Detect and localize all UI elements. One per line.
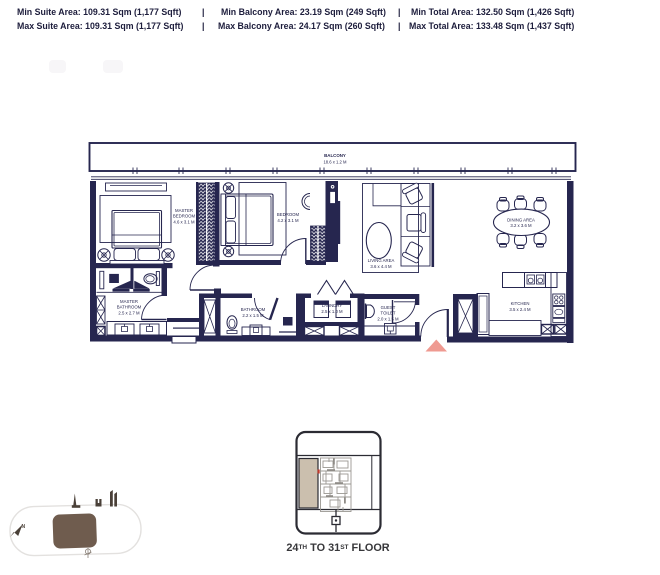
svg-text:BATHROOM: BATHROOM — [241, 307, 266, 312]
svg-text:DINING AREA: DINING AREA — [507, 218, 535, 223]
svg-text:Max Total Area: 133.48 Sqm (1,: Max Total Area: 133.48 Sqm (1,437 Sqft) — [409, 21, 574, 31]
svg-text:KITCHEN: KITCHEN — [511, 301, 530, 306]
svg-text:18.6 x 1.2 M: 18.6 x 1.2 M — [323, 160, 347, 165]
svg-text:BEDROOM: BEDROOM — [277, 212, 300, 217]
svg-text:Min Total Area: 132.50 Sqm (1,: Min Total Area: 132.50 Sqm (1,426 Sqft) — [411, 7, 574, 17]
svg-text:MASTER: MASTER — [120, 299, 138, 304]
svg-text:2.5 x 2.7 M: 2.5 x 2.7 M — [118, 311, 140, 316]
svg-text:3.2 x 3.6 M: 3.2 x 3.6 M — [510, 223, 532, 228]
svg-text:Min Suite Area: 109.31 Sqm (1,: Min Suite Area: 109.31 Sqm (1,177 Sqft) — [17, 7, 181, 17]
svg-text:LIVING AREA: LIVING AREA — [368, 258, 395, 263]
svg-text:3.5 x 2.4 M: 3.5 x 2.4 M — [509, 307, 531, 312]
svg-text:4.6 x 3.1 M: 4.6 x 3.1 M — [173, 220, 195, 225]
svg-text:BEDROOM: BEDROOM — [173, 214, 196, 219]
svg-text:|: | — [398, 7, 400, 17]
svg-text:Max Balcony Area: 24.17 Sqm (2: Max Balcony Area: 24.17 Sqm (260 Sqft) — [218, 21, 385, 31]
svg-text:24TH TO 31ST FLOOR: 24TH TO 31ST FLOOR — [286, 542, 389, 554]
svg-text:|: | — [398, 21, 400, 31]
svg-text:Max Suite Area: 109.31 Sqm (1,: Max Suite Area: 109.31 Sqm (1,177 Sqft) — [17, 21, 183, 31]
svg-text:Min Balcony Area: 23.19 Sqm (2: Min Balcony Area: 23.19 Sqm (249 Sqft) — [221, 7, 386, 17]
svg-text:2.5 x 1.0 M: 2.5 x 1.0 M — [321, 309, 343, 314]
svg-text:4.2 x 3.1 M: 4.2 x 3.1 M — [277, 218, 299, 223]
svg-text:TOILET: TOILET — [381, 311, 396, 316]
svg-text:GUEST: GUEST — [381, 305, 396, 310]
svg-text:|: | — [202, 7, 204, 17]
svg-text:|: | — [202, 21, 204, 31]
svg-text:BALCONY: BALCONY — [324, 153, 346, 158]
svg-text:3.6 x 4.4 M: 3.6 x 4.4 M — [370, 264, 392, 269]
svg-text:2.2 x 1.5 M: 2.2 x 1.5 M — [242, 313, 264, 318]
svg-text:LAUNDRY: LAUNDRY — [322, 303, 343, 308]
svg-text:BATHROOM: BATHROOM — [117, 305, 142, 310]
svg-text:MASTER: MASTER — [175, 208, 193, 213]
svg-text:N: N — [22, 524, 26, 530]
svg-text:2.0 x 1.5 M: 2.0 x 1.5 M — [377, 317, 399, 322]
